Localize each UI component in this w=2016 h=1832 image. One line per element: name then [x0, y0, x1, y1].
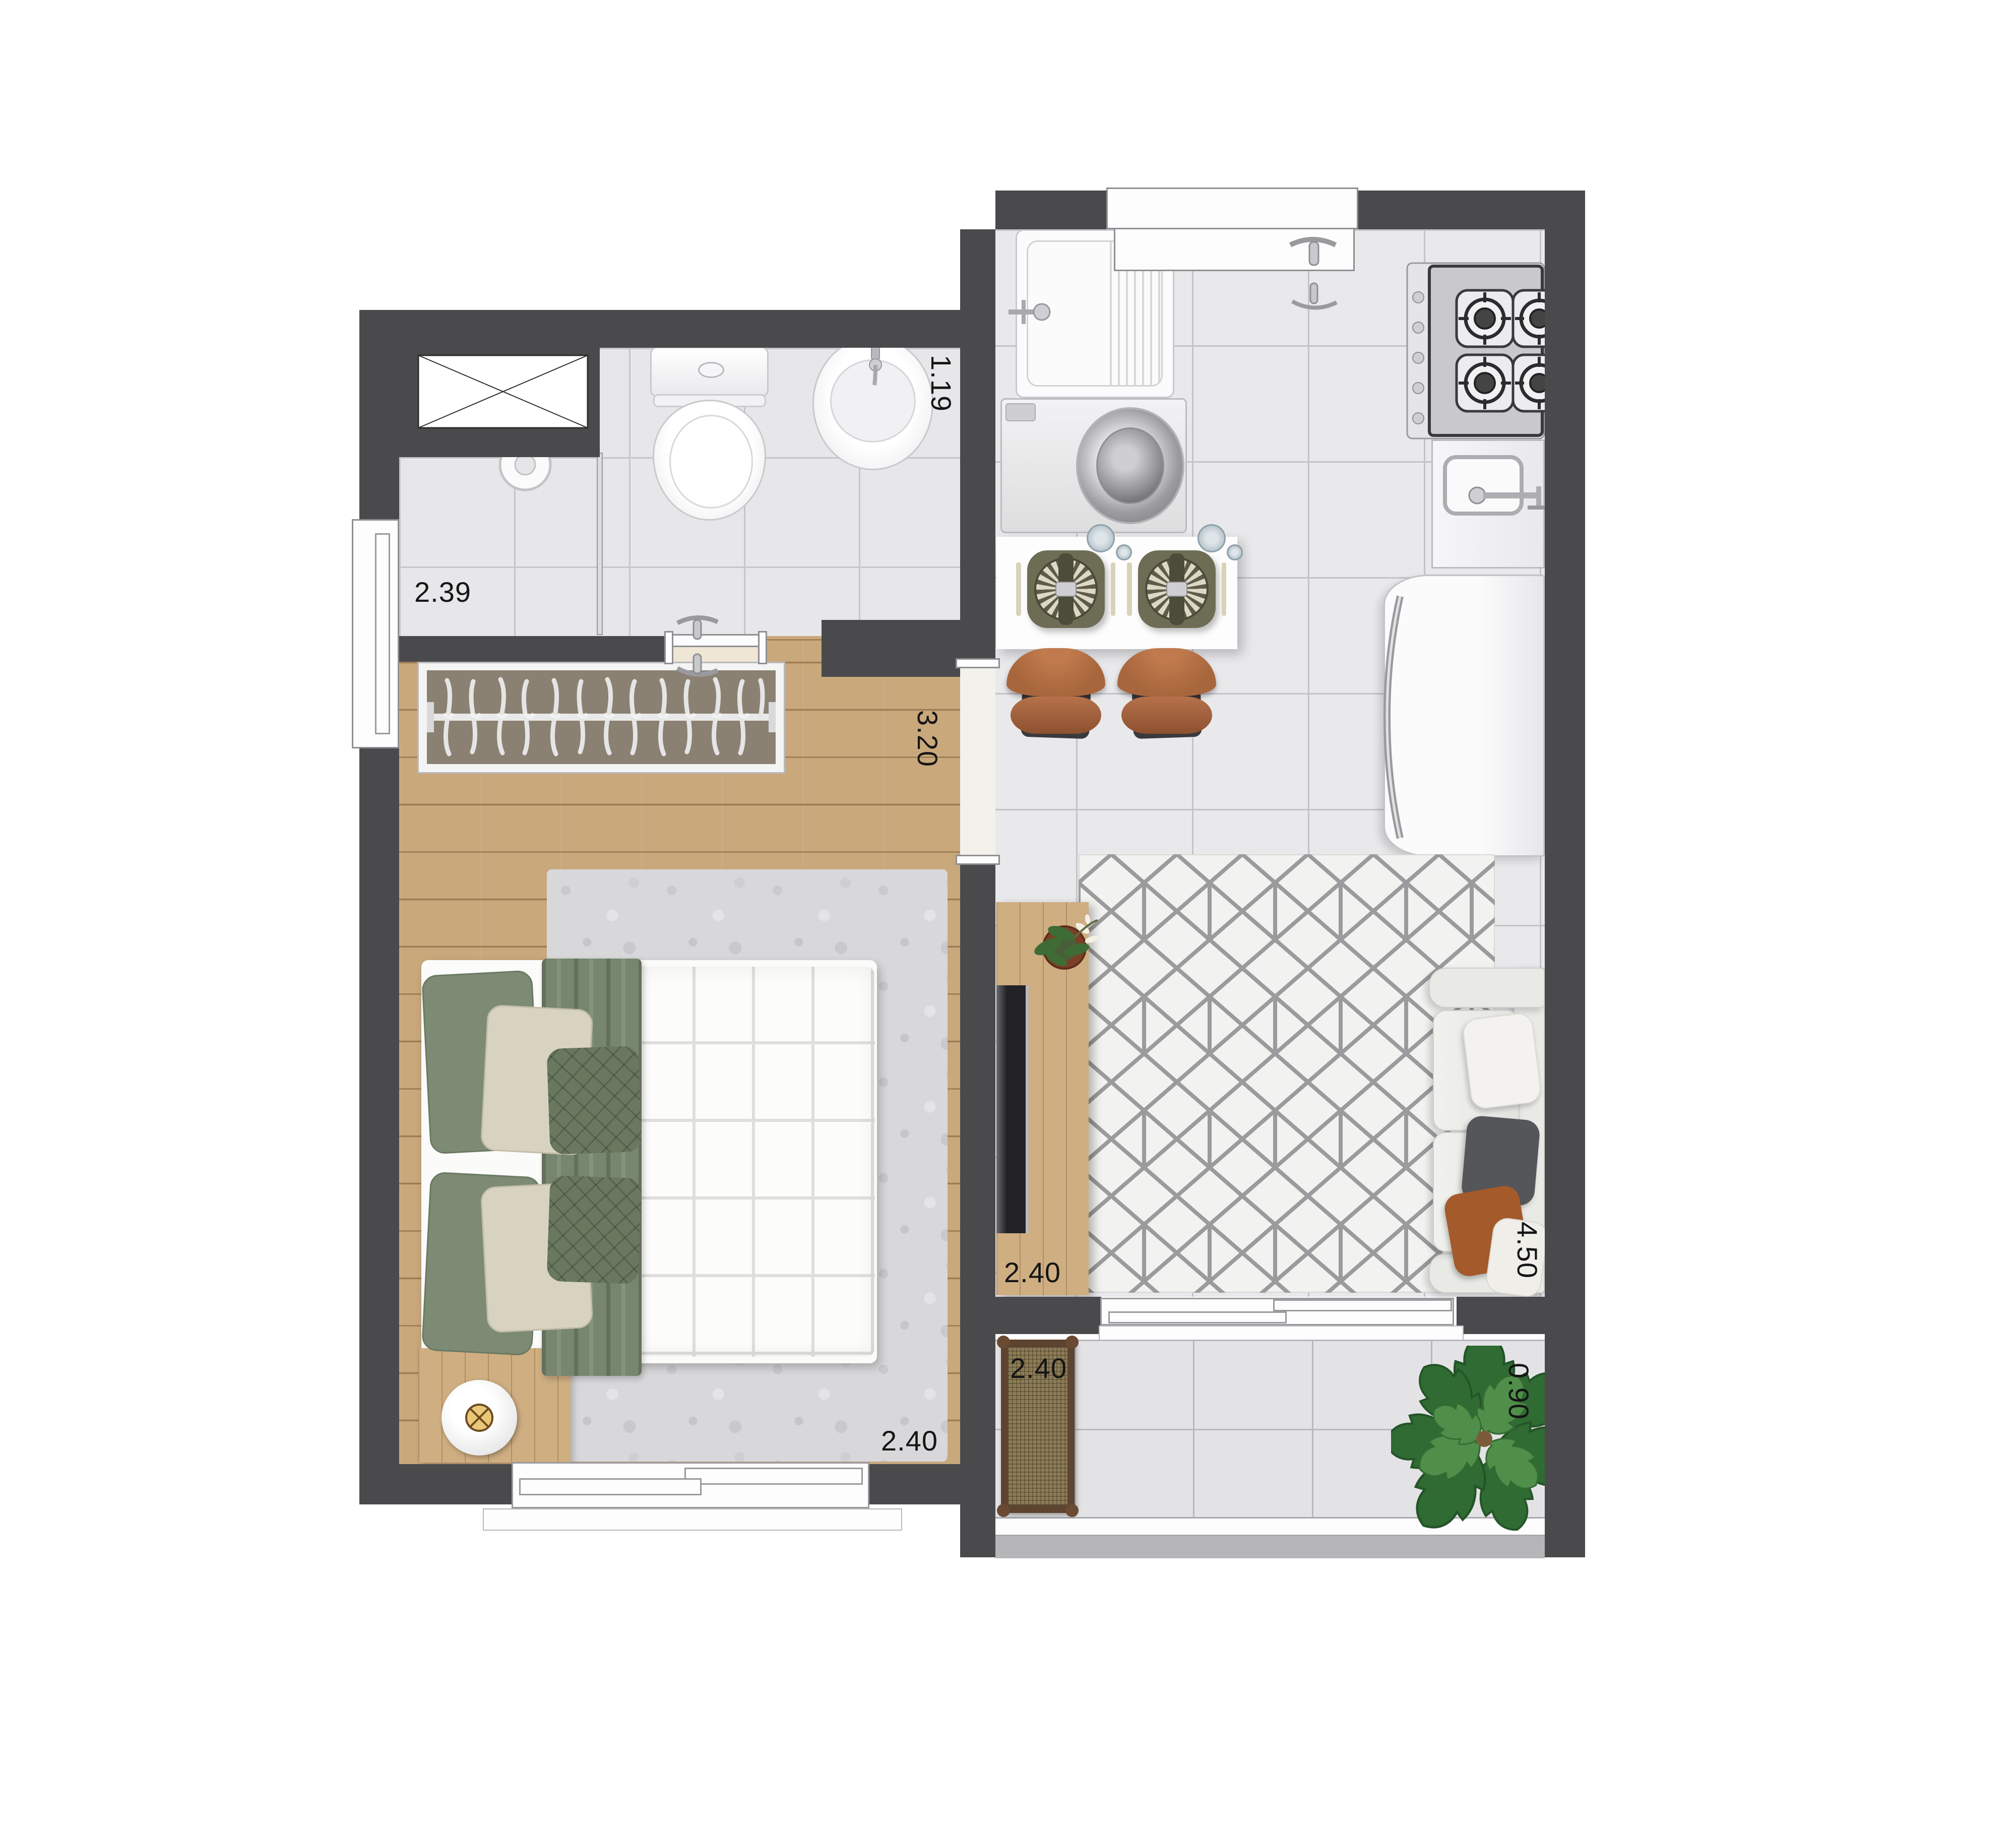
dim-label-bedroom-width: 2.40	[881, 1424, 938, 1457]
bedroom-doorway-threshold	[960, 666, 995, 857]
bedroom-doorway-jamb-top	[956, 658, 1000, 668]
stove-icon	[1406, 262, 1545, 439]
dim-label-balcony-width: 2.40	[1010, 1352, 1067, 1384]
dim-label-balcony-depth: 0.90	[1496, 1341, 1541, 1441]
balcony-sliding-door-panel-right	[1273, 1299, 1452, 1311]
bathroom-window-frame	[375, 533, 390, 734]
bedroom-window-sash-left	[519, 1478, 702, 1495]
dining-chair-icon	[1117, 648, 1216, 742]
balcony-ledge	[995, 1536, 1545, 1558]
dining-chair-icon	[1006, 648, 1105, 742]
kitchen-counter	[1431, 439, 1545, 568]
shower-partition	[597, 453, 603, 635]
tv-icon	[996, 985, 1029, 1233]
dim-label-hall-depth: 3.20	[905, 688, 950, 789]
kitchen-window-handle-icon	[1285, 231, 1346, 311]
balcony-sliding-door-panel-left	[1108, 1311, 1287, 1323]
dim-label-bathroom-depth: 1.19	[918, 333, 964, 433]
wall-bedroom-bottom-left	[359, 1464, 512, 1504]
washbasin-icon	[812, 337, 933, 473]
wall-living-bottom-left	[995, 1297, 1101, 1334]
bed-pillow-dark-green	[546, 1175, 642, 1284]
fridge-icon	[1383, 575, 1545, 857]
place-setting	[1027, 550, 1105, 628]
wall-bathroom-bottom	[359, 636, 670, 662]
bed-pillow-dark-green	[546, 1046, 642, 1155]
wall-bedroom-east	[960, 857, 995, 1297]
wall-divider-bath-kitchen	[960, 229, 995, 666]
wall-right	[1545, 191, 1585, 1557]
wall-left	[359, 310, 399, 1504]
bedroom-doorway-jamb-bottom	[956, 855, 1000, 865]
bedroom-window-sill	[483, 1508, 902, 1531]
dim-label-living-width: 2.40	[1004, 1256, 1061, 1289]
lamp-icon	[442, 1380, 517, 1456]
kitchen-faucet-icon	[1463, 476, 1549, 517]
washing-machine-icon	[1000, 398, 1187, 533]
bedroom-window-sash-right	[684, 1468, 863, 1485]
wall-balcony-left	[960, 1297, 995, 1557]
kitchen-window	[1106, 187, 1358, 229]
toilet-icon	[650, 347, 769, 521]
dim-label-living-depth: 4.50	[1504, 1199, 1550, 1300]
dim-label-shower-width: 2.39	[414, 576, 471, 608]
balcony-door-sill	[1099, 1325, 1464, 1341]
potted-plant-icon	[1028, 907, 1109, 988]
bathroom-door-handle-icon	[670, 608, 731, 688]
floor-plan: 2.39 1.19 3.20 2.40 2.40 4.50 2.40 0.90	[0, 0, 2016, 1832]
bathroom-door-jamb-right	[758, 631, 767, 664]
bed-duvet-quilted	[636, 967, 875, 1357]
sofa-pillow-white	[1462, 1012, 1543, 1110]
wall-bedroom-bottom-right	[869, 1464, 995, 1504]
shaft-icon	[417, 354, 589, 429]
place-setting	[1138, 550, 1216, 628]
wall-hall-block	[822, 620, 960, 677]
